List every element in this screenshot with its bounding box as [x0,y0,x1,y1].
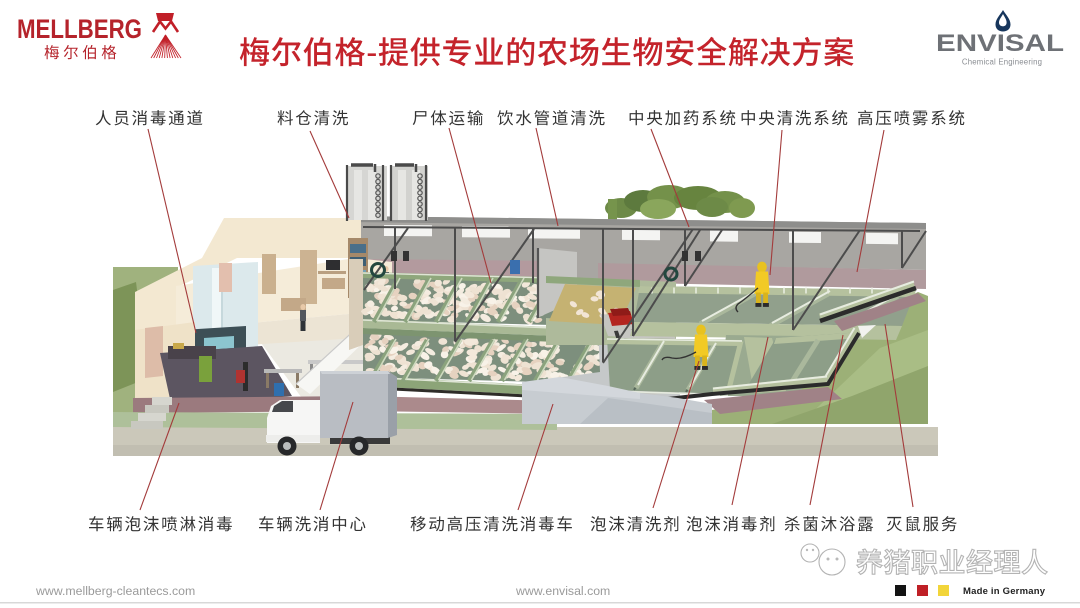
svg-text:www.envisal.com: www.envisal.com [515,584,610,598]
svg-text:ENVISAL: ENVISAL [936,30,1064,57]
svg-text:www.mellberg-cleantecs.com: www.mellberg-cleantecs.com [35,584,195,598]
svg-text:MELLBERG: MELLBERG [17,14,142,44]
svg-text:Made in Germany: Made in Germany [963,586,1046,597]
svg-text:Chemical Engineering: Chemical Engineering [962,58,1042,67]
